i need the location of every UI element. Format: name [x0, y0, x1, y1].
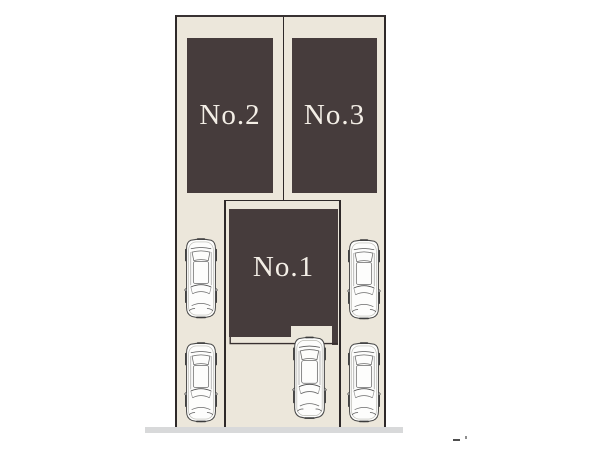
- boundary-line-no2-no3: [283, 17, 285, 200]
- plot-no2-label: No.2: [199, 101, 260, 130]
- stray-dot-mark: [465, 436, 467, 439]
- right-lane-boundary-line: [339, 200, 341, 427]
- road-strip: [145, 427, 403, 433]
- plot-no3: No.3: [292, 38, 377, 193]
- plot-no2: No.2: [187, 38, 273, 193]
- left-lane-boundary-line: [224, 200, 226, 427]
- plot-no1-label-wrap: No.1: [229, 209, 338, 326]
- plot-no3-label: No.3: [304, 101, 365, 130]
- plot-no1-label: No.1: [253, 253, 314, 282]
- stray-dash-mark: [453, 439, 460, 441]
- plot-no1-top-boundary-line: [224, 200, 340, 202]
